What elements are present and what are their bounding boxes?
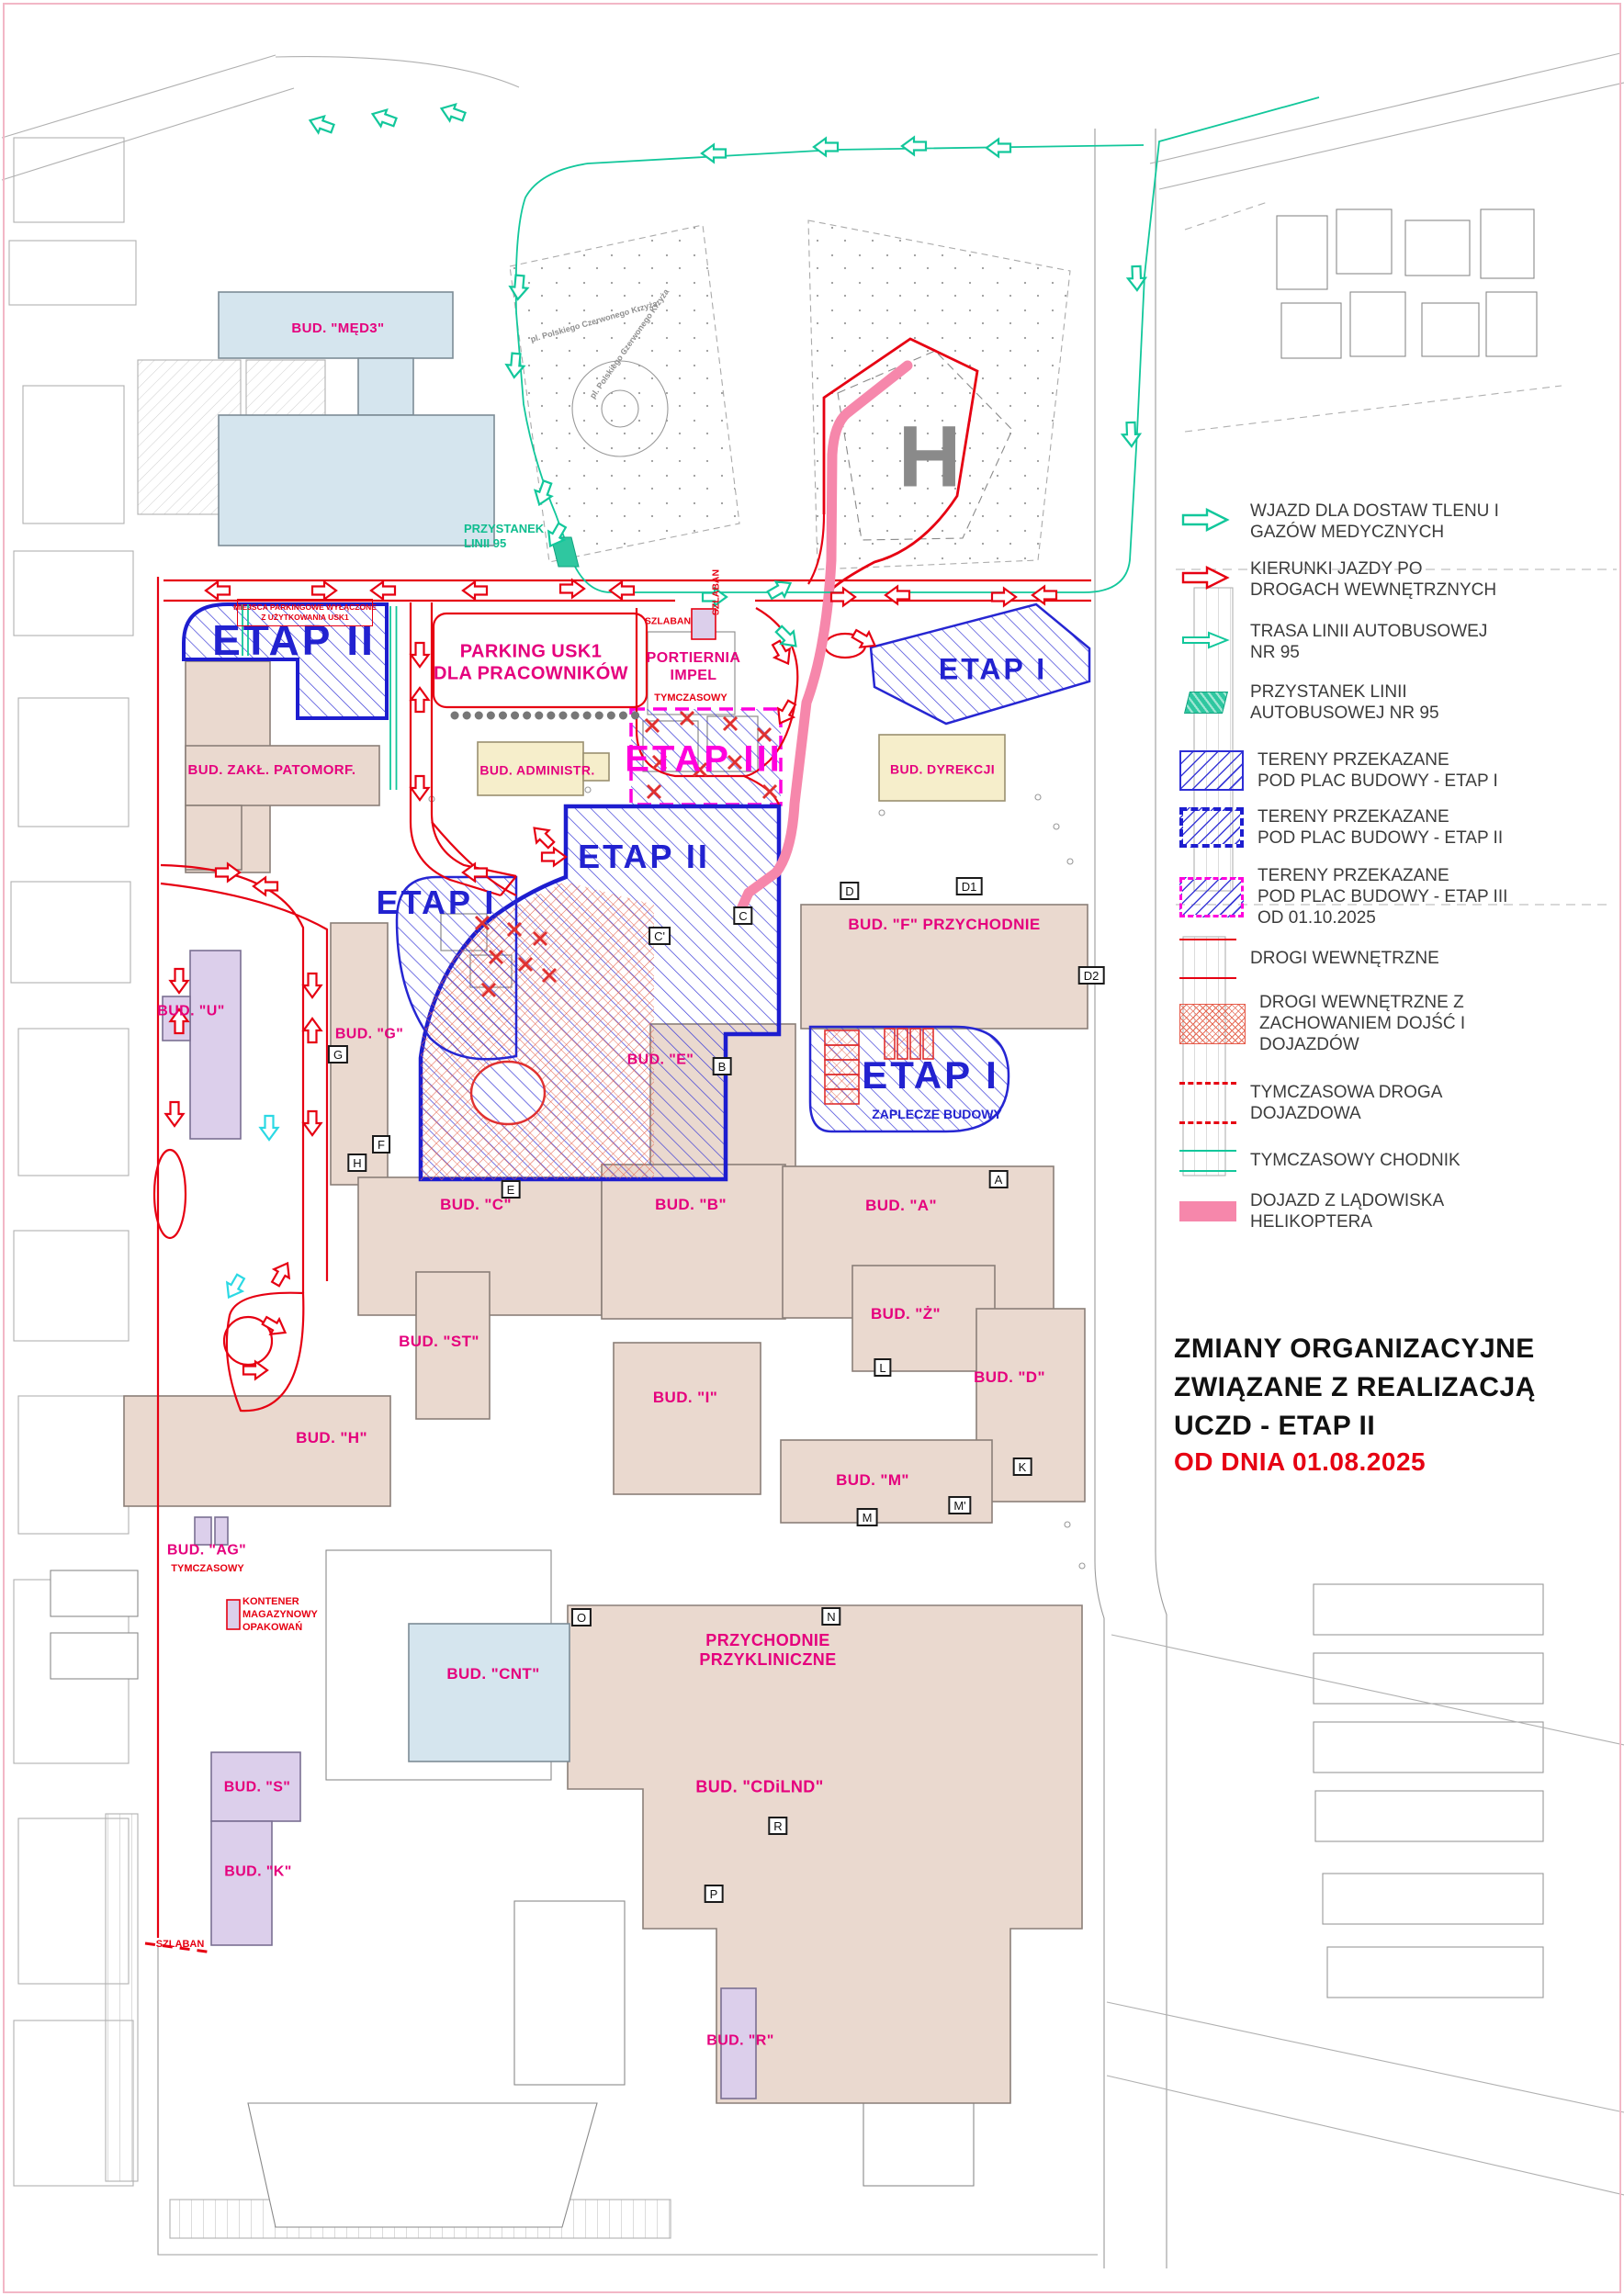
- building-label-g: BUD. "G": [335, 1027, 403, 1044]
- building-label-s: BUD. "S": [224, 1780, 291, 1797]
- closed-parking-box: MIEJSCA PARKINGOWE WYŁĄCZONE Z UŻYTKOWAN…: [237, 599, 373, 626]
- legend-item-trasa: TRASA LINII AUTOBUSOWEJ NR 95: [1179, 621, 1620, 663]
- legend-label: TYMCZASOWY CHODNIK: [1250, 1150, 1460, 1171]
- marker-H: H: [347, 1154, 367, 1172]
- marker-M2: M': [948, 1496, 971, 1514]
- etap1-hatch-swatch: [1179, 750, 1244, 791]
- gate-label: SZLABAN: [645, 615, 691, 627]
- legend-label: KIERUNKI JAZDY PO DROGACH WEWNĘTRZNYCH: [1250, 558, 1496, 601]
- legend-label: DROGI WEWNĘTRZNE Z ZACHOWANIEM DOJŚĆ I D…: [1259, 992, 1465, 1056]
- gate-label-vertical: SZLABAN: [710, 569, 722, 615]
- portiernia-label: PORTIERNIA IMPEL: [647, 650, 741, 685]
- building-label-u: BUD. "U": [157, 1004, 224, 1021]
- marker-A: A: [989, 1170, 1009, 1188]
- legend-item-przystanek: PRZYSTANEK LINII AUTOBUSOWEJ NR 95: [1179, 681, 1620, 724]
- building-label-cdilnd: BUD. "CDiLND": [695, 1777, 823, 1796]
- marker-C: C: [733, 906, 752, 925]
- ag-temp-label: TYMCZASOWY: [171, 1563, 243, 1576]
- basemap: [0, 0, 1624, 2296]
- legend-label: TERENY PRZEKAZANE POD PLAC BUDOWY - ETAP…: [1257, 749, 1498, 792]
- legend-item-dojazd-heli: DOJAZD Z LĄDOWISKA HELIKOPTERA: [1179, 1190, 1620, 1232]
- legend-item-wjazd: WJAZD DLA DOSTAW TLENU I GAZÓW MEDYCZNYC…: [1179, 501, 1620, 543]
- bus-stop-icon: [1179, 692, 1236, 714]
- legend-label: DOJAZD Z LĄDOWISKA HELIKOPTERA: [1250, 1190, 1444, 1232]
- marker-R: R: [768, 1817, 787, 1835]
- building-label-b: BUD. "B": [655, 1196, 727, 1214]
- zone-label-etap1-left: ETAP I: [377, 884, 497, 922]
- teal-line-icon: [1179, 1150, 1236, 1172]
- pink-bar-icon: [1179, 1201, 1236, 1221]
- building-label-i: BUD. "I": [653, 1389, 717, 1407]
- marker-D1: D1: [956, 877, 983, 895]
- legend-label: DROGI WEWNĘTRZNE: [1250, 948, 1439, 969]
- red-dashed-icon: [1179, 1082, 1236, 1124]
- building-label-a: BUD. "A": [865, 1197, 937, 1215]
- building-label-med3: BUD. "MĘD3": [291, 321, 384, 337]
- zone-label-etap2-center: ETAP II: [578, 838, 710, 876]
- marker-D2: D2: [1078, 966, 1105, 985]
- legend-label: PRZYSTANEK LINII AUTOBUSOWEJ NR 95: [1250, 681, 1439, 724]
- red-crosshatch-icon: [1179, 1004, 1246, 1044]
- building-label-administr: BUD. ADMINISTR.: [479, 763, 594, 779]
- legend-item-drogi: DROGI WEWNĘTRZNE: [1179, 939, 1620, 979]
- building-cnt: [409, 1624, 570, 1761]
- legend-item-kierunki: KIERUNKI JAZDY PO DROGACH WEWNĘTRZNYCH: [1179, 558, 1620, 601]
- legend-label: TRASA LINII AUTOBUSOWEJ NR 95: [1250, 621, 1487, 663]
- legend-label: TERENY PRZEKAZANE POD PLAC BUDOWY - ETAP…: [1257, 865, 1507, 929]
- building-label-k: BUD. "K": [224, 1864, 291, 1882]
- marker-K: K: [1013, 1458, 1032, 1476]
- legend-item-etap1: TERENY PRZEKAZANE POD PLAC BUDOWY - ETAP…: [1179, 749, 1620, 792]
- legend-label: TYMCZASOWA DROGA DOJAZDOWA: [1250, 1082, 1442, 1124]
- building-label-m: BUD. "M": [836, 1471, 909, 1490]
- legend-item-etap3: TERENY PRZEKAZANE POD PLAC BUDOWY - ETAP…: [1179, 865, 1620, 929]
- building-label-st: BUD. "ST": [399, 1333, 479, 1351]
- marker-G: G: [328, 1045, 348, 1064]
- parking-label: PARKING USK1 DLA PRACOWNIKÓW: [434, 641, 628, 684]
- marker-M: M: [857, 1508, 878, 1526]
- marker-N: N: [821, 1607, 840, 1626]
- building-label-z: BUD. "Ż": [871, 1305, 941, 1323]
- bus-stop-label: PRZYSTANEK LINII 95: [464, 522, 544, 552]
- building-label-patomorf: BUD. ZAKŁ. PATOMORF.: [188, 762, 356, 779]
- building-label-cnt: BUD. "CNT": [446, 1665, 539, 1683]
- teal-arrow-icon: [1179, 507, 1236, 537]
- site-plan-page: ETAP II ETAP I ETAP III ETAP II ETAP I E…: [0, 0, 1624, 2296]
- building-label-przychodnie: PRZYCHODNIE PRZYKLINICZNE: [699, 1631, 836, 1670]
- zone-label-etap3: ETAP III: [625, 739, 782, 781]
- building-label-ag: BUD. "AG": [167, 1543, 246, 1560]
- zaplecze-label: ZAPLECZE BUDOWY: [872, 1107, 1002, 1121]
- legend-item-tymczasowa-droga: TYMCZASOWA DROGA DOJAZDOWA: [1179, 1082, 1620, 1124]
- building-label-e: BUD. "E": [627, 1052, 694, 1070]
- cyan-arrows: [221, 1116, 278, 1301]
- portiernia-temp-label: TYMCZASOWY: [654, 692, 727, 705]
- marker-O: O: [571, 1608, 592, 1626]
- marker-D: D: [840, 882, 859, 900]
- marker-B: B: [713, 1057, 732, 1075]
- legend-label: TERENY PRZEKAZANE POD PLAC BUDOWY - ETAP…: [1257, 806, 1503, 849]
- title-block: ZMIANY ORGANIZACYJNE ZWIĄZANE Z REALIZAC…: [1174, 1330, 1620, 1477]
- red-line-icon: [1179, 939, 1236, 979]
- red-arrow-icon: [1179, 565, 1236, 595]
- building-label-f: BUD. "F" PRZYCHODNIE: [848, 916, 1040, 934]
- bottom-gate-label: SZLABAN: [156, 1939, 205, 1952]
- etap3-hatch-swatch: [1179, 877, 1244, 917]
- marker-E: E: [502, 1180, 521, 1199]
- etap2-hatch-swatch: [1179, 807, 1244, 848]
- building-label-dyrekcji: BUD. DYREKCJI: [890, 762, 995, 778]
- legend-label: WJAZD DLA DOSTAW TLENU I GAZÓW MEDYCZNYC…: [1250, 501, 1499, 543]
- zone-label-etap1-right: ETAP I: [862, 1053, 998, 1097]
- title-date: OD DNIA 01.08.2025: [1174, 1447, 1620, 1477]
- marker-F: F: [372, 1135, 390, 1154]
- marker-P: P: [705, 1885, 724, 1903]
- marker-L: L: [874, 1358, 891, 1377]
- building-label-d: BUD. "D": [974, 1368, 1045, 1387]
- legend-item-etap2: TERENY PRZEKAZANE POD PLAC BUDOWY - ETAP…: [1179, 806, 1620, 849]
- building-label-h: BUD. "H": [296, 1429, 367, 1447]
- teal-route-arrow-icon: [1179, 627, 1236, 658]
- legend-item-drogi-dojscia: DROGI WEWNĘTRZNE Z ZACHOWANIEM DOJŚĆ I D…: [1179, 992, 1620, 1056]
- closed-parking-label: MIEJSCA PARKINGOWE WYŁĄCZONE Z UŻYTKOWAN…: [233, 602, 377, 622]
- building-label-r: BUD. "R": [706, 2033, 773, 2051]
- container-label: KONTENER MAGAZYNOWY OPAKOWAŃ: [242, 1596, 318, 1634]
- page-title: ZMIANY ORGANIZACYJNE ZWIĄZANE Z REALIZAC…: [1174, 1330, 1620, 1446]
- marker-C2: C': [648, 927, 671, 945]
- zone-label-etap1-topright: ETAP I: [939, 653, 1047, 687]
- legend-item-chodnik: TYMCZASOWY CHODNIK: [1179, 1150, 1620, 1172]
- helipad-letter: H: [898, 408, 962, 508]
